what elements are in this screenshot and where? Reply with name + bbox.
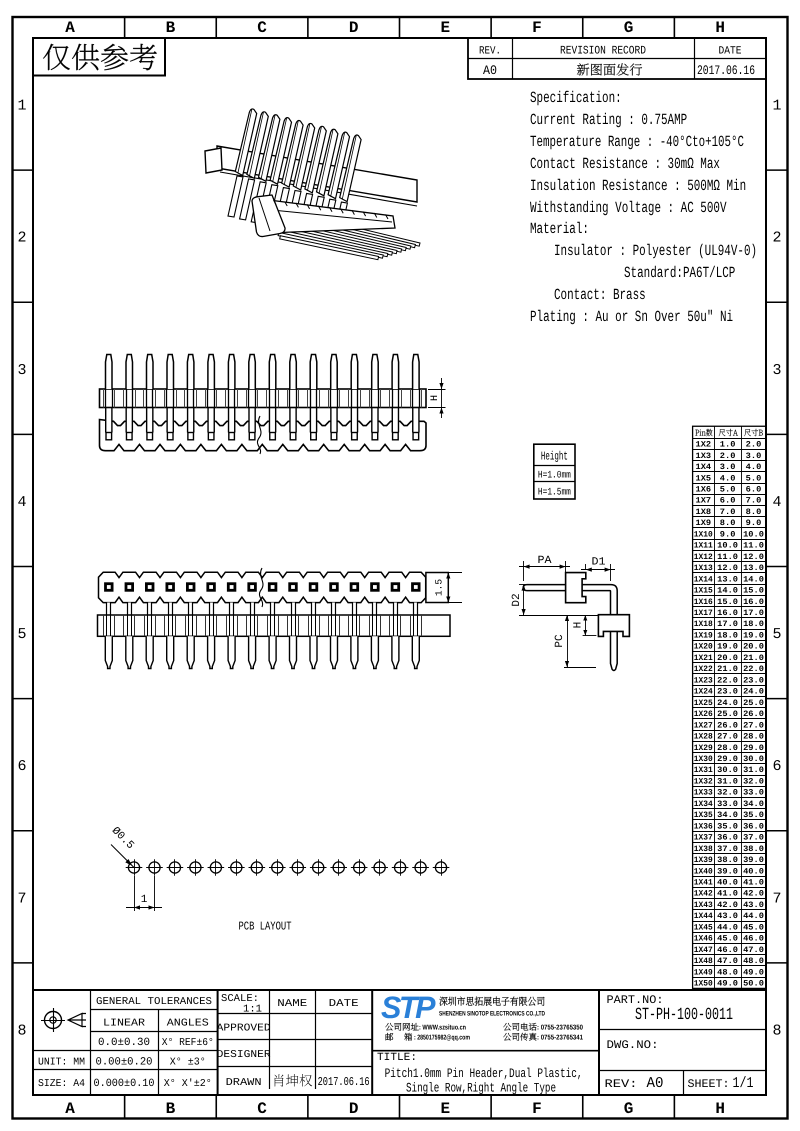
svg-text:2.0: 2.0: [720, 452, 736, 461]
svg-text:G: G: [624, 1100, 634, 1118]
svg-text:Withstanding Voltage : AC 500V: Withstanding Voltage : AC 500V: [530, 199, 727, 217]
svg-text:10.0: 10.0: [743, 530, 764, 539]
svg-text:1X24: 1X24: [694, 688, 713, 697]
svg-text:9.0: 9.0: [720, 530, 736, 539]
svg-text:REV:: REV:: [605, 1078, 638, 1091]
svg-text:45.0: 45.0: [717, 935, 738, 944]
svg-text:ST-PH-100-0011: ST-PH-100-0011: [635, 1006, 733, 1025]
svg-text:0.00±0.20: 0.00±0.20: [96, 1057, 153, 1069]
svg-text:Temperature Range : -40°Cto+10: Temperature Range : -40°Cto+105°C: [530, 133, 744, 151]
svg-text:A0: A0: [483, 63, 497, 78]
svg-text:LINEAR: LINEAR: [103, 1018, 146, 1030]
svg-text:29.0: 29.0: [743, 744, 764, 753]
svg-text:19.0: 19.0: [743, 631, 764, 640]
svg-text:1X21: 1X21: [694, 654, 713, 663]
svg-text:30.0: 30.0: [717, 766, 738, 775]
svg-text:1X2: 1X2: [696, 441, 712, 450]
svg-text:1: 1: [17, 98, 26, 115]
svg-text:1X44: 1X44: [694, 912, 713, 921]
svg-text:1X16: 1X16: [694, 598, 713, 607]
svg-text:34.0: 34.0: [743, 800, 764, 809]
svg-text:2: 2: [17, 230, 26, 247]
svg-text:25.0: 25.0: [743, 699, 764, 708]
svg-text:E: E: [441, 19, 451, 37]
svg-text:Plating : Au or Sn Over 50u″ N: Plating : Au or Sn Over 50u″ Ni: [530, 308, 733, 326]
svg-text:13.0: 13.0: [743, 564, 764, 573]
svg-text:1X37: 1X37: [694, 834, 713, 843]
svg-text:H: H: [715, 1100, 725, 1118]
svg-text:30.0: 30.0: [743, 755, 764, 764]
svg-text:1X26: 1X26: [694, 710, 713, 719]
svg-text:6: 6: [17, 758, 26, 775]
svg-text:1X13: 1X13: [694, 564, 713, 573]
svg-text:40.0: 40.0: [743, 867, 764, 876]
svg-text:H: H: [715, 19, 725, 37]
svg-text:: 0755-23765350: : 0755-23765350: [537, 1025, 583, 1032]
svg-text:Insulation Resistance : 500MΩ: Insulation Resistance : 500MΩ Min: [530, 177, 746, 195]
svg-text:35.0: 35.0: [743, 811, 764, 820]
svg-text:17.0: 17.0: [743, 609, 764, 618]
svg-text:49.0: 49.0: [717, 980, 738, 989]
svg-text:18.0: 18.0: [743, 620, 764, 629]
svg-text:45.0: 45.0: [743, 923, 764, 932]
svg-text:A: A: [65, 19, 75, 37]
svg-text:DATE: DATE: [329, 998, 359, 1010]
svg-text:44.0: 44.0: [717, 923, 738, 932]
svg-text:48.0: 48.0: [717, 968, 738, 977]
svg-text:X° ±3°: X° ±3°: [170, 1057, 206, 1069]
svg-text:REVISION RECORD: REVISION RECORD: [560, 45, 646, 58]
svg-text:ANGLES: ANGLES: [167, 1018, 209, 1030]
svg-text:3: 3: [17, 362, 26, 379]
svg-text:D: D: [349, 19, 359, 37]
svg-text:1X30: 1X30: [694, 755, 713, 764]
svg-text:1X40: 1X40: [694, 867, 713, 876]
svg-text:NAME: NAME: [277, 998, 307, 1010]
svg-text:15.0: 15.0: [743, 587, 764, 596]
svg-text:7: 7: [17, 890, 26, 907]
svg-text:1X33: 1X33: [694, 789, 713, 798]
svg-text:1X49: 1X49: [694, 968, 713, 977]
svg-text:21.0: 21.0: [743, 654, 764, 663]
svg-text:12.0: 12.0: [743, 553, 764, 562]
svg-text:X° REF±6°: X° REF±6°: [162, 1037, 214, 1049]
svg-text:7.0: 7.0: [720, 508, 736, 517]
svg-text:Current Rating : 0.75AMP: Current Rating : 0.75AMP: [530, 111, 687, 129]
svg-text:32.0: 32.0: [717, 789, 738, 798]
svg-text:38.0: 38.0: [743, 845, 764, 854]
svg-text:1X8: 1X8: [696, 508, 712, 517]
svg-text:1.5: 1.5: [434, 579, 445, 596]
svg-text:1X6: 1X6: [696, 485, 712, 494]
svg-text:H=1.0mm: H=1.0mm: [538, 471, 571, 482]
svg-text:5: 5: [17, 626, 26, 643]
svg-text:H: H: [430, 395, 441, 401]
svg-text:1X23: 1X23: [694, 676, 713, 685]
svg-text:36.0: 36.0: [717, 834, 738, 843]
svg-text:40.0: 40.0: [717, 879, 738, 888]
svg-text:36.0: 36.0: [743, 822, 764, 831]
svg-text:18.0: 18.0: [717, 631, 738, 640]
svg-text:B: B: [166, 1100, 176, 1118]
svg-text:DRAWN: DRAWN: [226, 1077, 262, 1089]
svg-text:4.0: 4.0: [720, 474, 736, 483]
svg-text:1: 1: [772, 98, 781, 115]
svg-text:4: 4: [772, 494, 781, 511]
svg-text:1X27: 1X27: [694, 721, 713, 730]
svg-text:1X7: 1X7: [696, 497, 712, 506]
svg-text:1X41: 1X41: [694, 879, 713, 888]
svg-text:1X47: 1X47: [694, 946, 713, 955]
svg-text:1X22: 1X22: [694, 665, 713, 674]
svg-text:PA: PA: [538, 555, 552, 567]
svg-text:23.0: 23.0: [743, 676, 764, 685]
svg-text:1X48: 1X48: [694, 957, 713, 966]
svg-text:11.0: 11.0: [743, 542, 764, 551]
svg-text:DWG.NO:: DWG.NO:: [607, 1039, 659, 1052]
svg-text:11.0: 11.0: [717, 553, 738, 562]
svg-text:3.0: 3.0: [746, 452, 762, 461]
svg-text:Contact: Brass: Contact: Brass: [554, 286, 646, 304]
svg-text:16.0: 16.0: [743, 598, 764, 607]
svg-text:PCB LAYOUT: PCB LAYOUT: [239, 920, 292, 934]
svg-text:26.0: 26.0: [717, 721, 738, 730]
svg-text:D: D: [349, 1100, 359, 1118]
svg-text:0.000±0.10: 0.000±0.10: [94, 1078, 155, 1090]
svg-text:42.0: 42.0: [743, 890, 764, 899]
svg-text:37.0: 37.0: [743, 834, 764, 843]
svg-text:6: 6: [772, 758, 781, 775]
svg-text:50.0: 50.0: [743, 980, 764, 989]
svg-text:1X50: 1X50: [694, 980, 713, 989]
svg-text:5.0: 5.0: [746, 474, 762, 483]
svg-text:4: 4: [17, 494, 26, 511]
svg-text:27.0: 27.0: [743, 721, 764, 730]
svg-text:1X32: 1X32: [694, 777, 713, 786]
svg-text:1X20: 1X20: [694, 643, 713, 652]
svg-text:1X3: 1X3: [696, 452, 712, 461]
svg-text:1X9: 1X9: [696, 519, 712, 528]
svg-text:6.0: 6.0: [746, 485, 762, 494]
svg-text:6.0: 6.0: [720, 497, 736, 506]
svg-text:12.0: 12.0: [717, 564, 738, 573]
svg-text:G: G: [624, 19, 634, 37]
svg-text:32.0: 32.0: [743, 777, 764, 786]
svg-text:31.0: 31.0: [717, 777, 738, 786]
svg-text:41.0: 41.0: [717, 890, 738, 899]
svg-text:GENERAL TOLERANCES: GENERAL TOLERANCES: [96, 996, 212, 1008]
svg-text:DATE: DATE: [719, 46, 742, 58]
svg-text:3: 3: [772, 362, 781, 379]
svg-text:A: A: [65, 1100, 75, 1118]
svg-text:14.0: 14.0: [717, 587, 738, 596]
svg-text:1X18: 1X18: [694, 620, 713, 629]
svg-text:1:1: 1:1: [243, 1004, 262, 1016]
svg-text:1X19: 1X19: [694, 631, 713, 640]
svg-text:1X29: 1X29: [694, 744, 713, 753]
svg-text:47.0: 47.0: [717, 957, 738, 966]
svg-text:C: C: [257, 1100, 267, 1118]
svg-text:2: 2: [772, 230, 781, 247]
svg-text:1X38: 1X38: [694, 845, 713, 854]
svg-text:UNIT: MM: UNIT: MM: [38, 1057, 85, 1069]
svg-text:24.0: 24.0: [717, 699, 738, 708]
svg-text:2017.06.16: 2017.06.16: [318, 1075, 370, 1089]
svg-text:1X31: 1X31: [694, 766, 713, 775]
svg-text:X° X'±2°: X° X'±2°: [164, 1078, 212, 1090]
svg-text:31.0: 31.0: [743, 766, 764, 775]
svg-text:37.0: 37.0: [717, 845, 738, 854]
svg-text:21.0: 21.0: [717, 665, 738, 674]
svg-text:: 2850175982@qq.com: : 2850175982@qq.com: [414, 1035, 470, 1042]
svg-text:1X14: 1X14: [694, 575, 713, 584]
svg-text:8: 8: [17, 1022, 26, 1039]
svg-text:8: 8: [772, 1022, 781, 1039]
svg-text:1X45: 1X45: [694, 923, 713, 932]
svg-text:: 0755-23765341: : 0755-23765341: [537, 1035, 583, 1042]
svg-text:15.0: 15.0: [717, 598, 738, 607]
svg-text:20.0: 20.0: [743, 643, 764, 652]
svg-text:1X34: 1X34: [694, 800, 713, 809]
svg-text:H: H: [572, 622, 584, 629]
svg-text:H=1.5mm: H=1.5mm: [538, 488, 571, 499]
svg-text:7: 7: [772, 890, 781, 907]
svg-text:28.0: 28.0: [743, 733, 764, 742]
svg-text:46.0: 46.0: [717, 946, 738, 955]
svg-text:1/1: 1/1: [733, 1075, 754, 1092]
svg-text:48.0: 48.0: [743, 957, 764, 966]
svg-text:1X25: 1X25: [694, 699, 713, 708]
svg-text:1X36: 1X36: [694, 822, 713, 831]
svg-text:38.0: 38.0: [717, 856, 738, 865]
svg-text:1X46: 1X46: [694, 935, 713, 944]
svg-text:5: 5: [772, 626, 781, 643]
svg-text:44.0: 44.0: [743, 912, 764, 921]
svg-text:41.0: 41.0: [743, 879, 764, 888]
svg-text:10.0: 10.0: [717, 542, 738, 551]
svg-text:39.0: 39.0: [717, 867, 738, 876]
svg-text:47.0: 47.0: [743, 946, 764, 955]
svg-text:Height: Height: [541, 450, 568, 464]
svg-text:SHENZHEN SINOTOP ELECTRONICS C: SHENZHEN SINOTOP ELECTRONICS CO.,LTD: [439, 1011, 545, 1018]
svg-text:0.0±0.30: 0.0±0.30: [98, 1037, 150, 1049]
svg-text:SHEET:: SHEET:: [688, 1078, 730, 1091]
svg-text:1X35: 1X35: [694, 811, 713, 820]
svg-text:20.0: 20.0: [717, 654, 738, 663]
svg-text:27.0: 27.0: [717, 733, 738, 742]
svg-text:A0: A0: [647, 1075, 664, 1092]
svg-text:26.0: 26.0: [743, 710, 764, 719]
svg-text:29.0: 29.0: [717, 755, 738, 764]
svg-text:F: F: [532, 19, 542, 37]
svg-text:14.0: 14.0: [743, 575, 764, 584]
svg-text:1X5: 1X5: [696, 474, 712, 483]
svg-text:1.0: 1.0: [720, 441, 736, 450]
svg-text:Material:: Material:: [530, 220, 589, 238]
svg-text:TITLE:: TITLE:: [377, 1052, 417, 1064]
svg-text:16.0: 16.0: [717, 609, 738, 618]
svg-text:Pitch1.0mm Pin Header,Dual Pla: Pitch1.0mm Pin Header,Dual Plastic,: [385, 1066, 583, 1081]
svg-text:49.0: 49.0: [743, 968, 764, 977]
svg-text:5.0: 5.0: [720, 485, 736, 494]
svg-text:C: C: [257, 19, 267, 37]
svg-text:1X12: 1X12: [694, 553, 713, 562]
svg-text:33.0: 33.0: [717, 800, 738, 809]
svg-text:35.0: 35.0: [717, 822, 738, 831]
svg-text:STP: STP: [381, 990, 436, 1025]
svg-text:B: B: [166, 19, 176, 37]
svg-text:22.0: 22.0: [717, 676, 738, 685]
svg-text:28.0: 28.0: [717, 744, 738, 753]
svg-text:1X11: 1X11: [694, 542, 713, 551]
svg-text:F: F: [532, 1100, 542, 1118]
svg-text:APPROVED: APPROVED: [217, 1023, 271, 1035]
svg-text:43.0: 43.0: [743, 901, 764, 910]
svg-text:23.0: 23.0: [717, 688, 738, 697]
svg-text:Insulator : Polyester (UL94V-0: Insulator : Polyester (UL94V-0): [554, 242, 757, 260]
svg-text:2017.06.16: 2017.06.16: [697, 63, 755, 78]
svg-text:REV.: REV.: [479, 46, 501, 58]
svg-text:19.0: 19.0: [717, 643, 738, 652]
svg-text:1: 1: [141, 894, 148, 906]
svg-text:33.0: 33.0: [743, 789, 764, 798]
svg-text:1X28: 1X28: [694, 733, 713, 742]
svg-text:SIZE: A4: SIZE: A4: [38, 1078, 85, 1090]
svg-text:3.0: 3.0: [720, 463, 736, 472]
svg-text:D2: D2: [511, 593, 523, 606]
svg-text:25.0: 25.0: [717, 710, 738, 719]
svg-text:2.0: 2.0: [746, 441, 762, 450]
svg-text:46.0: 46.0: [743, 935, 764, 944]
svg-text:1X4: 1X4: [696, 463, 712, 472]
svg-text:22.0: 22.0: [743, 665, 764, 674]
svg-text:1X15: 1X15: [694, 587, 713, 596]
svg-text:Standard:PA6T/LCP: Standard:PA6T/LCP: [624, 264, 735, 282]
svg-text:DESIGNER: DESIGNER: [217, 1049, 272, 1061]
svg-text:Single Row,Right Angle Type: Single Row,Right Angle Type: [406, 1081, 556, 1096]
svg-text:PC: PC: [554, 634, 566, 648]
svg-text:7.0: 7.0: [746, 497, 762, 506]
svg-text:1X10: 1X10: [694, 530, 713, 539]
svg-text:1X39: 1X39: [694, 856, 713, 865]
svg-text:42.0: 42.0: [717, 901, 738, 910]
svg-text:17.0: 17.0: [717, 620, 738, 629]
svg-text:1X42: 1X42: [694, 890, 713, 899]
svg-text:Contact Resistance : 30mΩ Max: Contact Resistance : 30mΩ Max: [530, 155, 720, 173]
svg-text:8.0: 8.0: [746, 508, 762, 517]
svg-text:: WWW.szsituo.cn: : WWW.szsituo.cn: [419, 1024, 466, 1032]
svg-text:34.0: 34.0: [717, 811, 738, 820]
svg-text:E: E: [441, 1100, 451, 1118]
svg-text:Specification:: Specification:: [530, 89, 622, 107]
svg-text:9.0: 9.0: [746, 519, 762, 528]
svg-text:D1: D1: [592, 557, 606, 569]
svg-text:8.0: 8.0: [720, 519, 736, 528]
svg-text:1X17: 1X17: [694, 609, 713, 618]
svg-text:13.0: 13.0: [717, 575, 738, 584]
svg-text:24.0: 24.0: [743, 688, 764, 697]
svg-text:43.0: 43.0: [717, 912, 738, 921]
svg-text:1X43: 1X43: [694, 901, 713, 910]
svg-text:39.0: 39.0: [743, 856, 764, 865]
svg-text:4.0: 4.0: [746, 463, 762, 472]
